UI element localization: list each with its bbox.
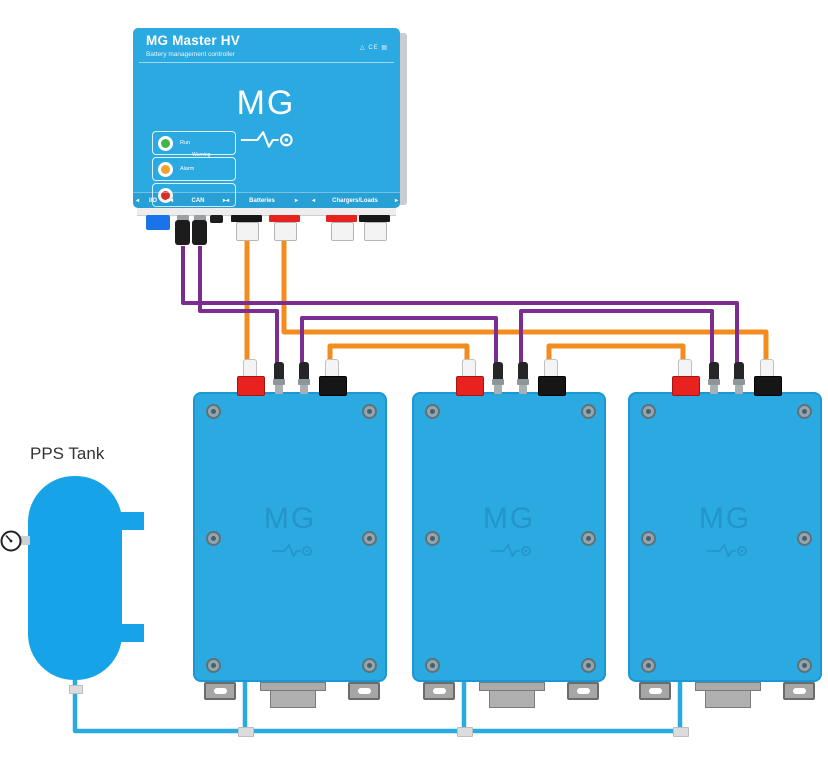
mounting-bracket-left (204, 682, 236, 700)
mg-logo-mark-icon (239, 128, 295, 152)
screw-icon (362, 658, 377, 673)
chargers-loads-negative-housing (364, 222, 387, 241)
master-side-panel (399, 33, 407, 205)
led-ring (158, 162, 173, 177)
can-plug-a (175, 220, 190, 245)
screw-icon (797, 404, 812, 419)
master-title: MG Master HV (146, 33, 240, 48)
screw-icon (206, 658, 221, 673)
run-led-icon (161, 139, 170, 148)
screw-icon (206, 404, 221, 419)
mg-watermark-text: MG (414, 502, 604, 536)
coolant-fitting-battery1 (238, 727, 254, 737)
battery-port-negative-housing (236, 222, 259, 241)
wire-series-link-battery2-to-battery3 (549, 346, 683, 360)
port-label-chargers-loads: Chargers/Loads (312, 197, 398, 204)
led-label: Run (180, 140, 190, 146)
master-subtitle: Battery management controller (146, 51, 235, 58)
coolant-fitting-battery2 (457, 727, 473, 737)
header-divider (139, 62, 394, 63)
port-label-text: Chargers/Loads (332, 198, 378, 204)
mounting-bracket-left (639, 682, 671, 700)
led-label: Alarm (180, 166, 194, 172)
master-controller: MG Master HV Battery management controll… (133, 28, 400, 208)
io-connector (146, 215, 170, 230)
tank-label: PPS Tank (30, 444, 104, 464)
port-label-can: CAN (170, 197, 226, 204)
can-port-2-base (519, 385, 527, 394)
screw-icon (641, 404, 656, 419)
chargers-loads-negative-terminal (359, 215, 390, 222)
mg-watermark-text: MG (195, 502, 385, 536)
pps-tank (28, 476, 122, 680)
can-port-1-base (275, 385, 283, 394)
led-indicator-alarm: Alarm (152, 157, 236, 181)
can-port-2-base (300, 385, 308, 394)
screw-icon (362, 404, 377, 419)
port-label-strip: I/O CAN Batteries Chargers/Loads (133, 192, 400, 208)
warning-caption: Warning (192, 152, 210, 158)
port-label-io: I/O (136, 197, 170, 204)
coolant-fitting-battery3 (673, 727, 689, 737)
can-port-2-base (735, 385, 743, 394)
port-label-text: Batteries (249, 198, 275, 204)
mg-logo-text: MG (199, 84, 333, 123)
alarm-led-icon (161, 165, 170, 174)
screw-icon (797, 658, 812, 673)
mg-watermark-mark-icon (705, 542, 749, 560)
chargers-loads-positive-housing (331, 222, 354, 241)
screw-icon (581, 404, 596, 419)
can-port-1-plug (709, 362, 719, 380)
can-port-2-plug (518, 362, 528, 380)
wire-series-link-battery1-to-battery2 (330, 346, 467, 360)
positive-terminal (672, 376, 700, 396)
mounting-bracket-right (348, 682, 380, 700)
port-label-batteries: Batteries (226, 197, 298, 204)
battery-module-2: MG (412, 392, 606, 682)
negative-terminal (319, 376, 347, 396)
screw-icon (581, 658, 596, 673)
pressure-gauge-icon (0, 529, 24, 553)
coolant-fitting-tank (69, 685, 83, 694)
battery-port-positive-terminal (269, 215, 300, 222)
negative-terminal (754, 376, 782, 396)
mounting-bracket-right (783, 682, 815, 700)
mounting-bracket-left (423, 682, 455, 700)
wiring-diagram: MG Master HV Battery management controll… (0, 0, 828, 768)
port-label-text: I/O (149, 198, 157, 204)
battery-port-positive-housing (274, 222, 297, 241)
wire-power-master-to-battery3-negative (284, 240, 766, 360)
can-port-1-plug (274, 362, 284, 380)
master-bottom-flange (137, 208, 396, 216)
positive-terminal (237, 376, 265, 396)
mg-watermark-text: MG (630, 502, 820, 536)
can-terminator-plug (210, 215, 223, 223)
bottom-connector-body (705, 690, 751, 708)
bottom-connector-body (270, 690, 316, 708)
positive-terminal (456, 376, 484, 396)
chargers-loads-positive-terminal (326, 215, 357, 222)
can-port-2-plug (734, 362, 744, 380)
negative-terminal (538, 376, 566, 396)
battery-module-3: MG (628, 392, 822, 682)
can-port-2-plug (299, 362, 309, 380)
mg-watermark-mark-icon (489, 542, 533, 560)
led-ring (158, 136, 173, 151)
certification-marks-icon: △ CE ▤ (360, 44, 388, 51)
screw-icon (425, 658, 440, 673)
bottom-connector-body (489, 690, 535, 708)
can-port-1-base (494, 385, 502, 394)
port-label-text: CAN (192, 198, 205, 204)
mounting-bracket-right (567, 682, 599, 700)
mg-watermark-mark-icon (270, 542, 314, 560)
can-port-1-plug (493, 362, 503, 380)
battery-port-negative-terminal (231, 215, 262, 222)
can-plug-b (192, 220, 207, 245)
screw-icon (425, 404, 440, 419)
battery-module-1: MG (193, 392, 387, 682)
screw-icon (641, 658, 656, 673)
can-port-1-base (710, 385, 718, 394)
